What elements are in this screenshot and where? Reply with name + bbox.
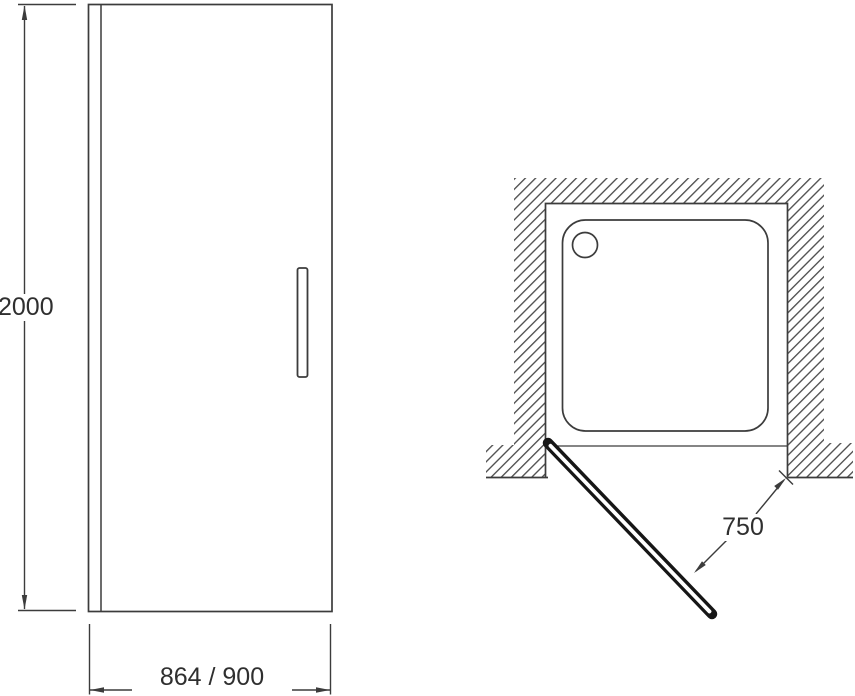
- arrowhead-down: [22, 595, 27, 610]
- open-door-panel-core: [551, 446, 710, 612]
- door-handle: [298, 268, 308, 377]
- arrowhead-to-wall-corner: [774, 478, 786, 490]
- arrowhead-right: [316, 687, 330, 692]
- arrowhead-up: [22, 6, 27, 21]
- drawing-linework: [0, 0, 855, 696]
- door-panel: [89, 5, 333, 612]
- plan-view: [486, 178, 853, 614]
- front-elevation-view: [89, 5, 333, 612]
- width-dimension-label: 864 / 900: [132, 664, 292, 691]
- technical-drawing: 2000 864 / 900 750: [0, 0, 855, 696]
- opening-dimension-label: 750: [716, 514, 770, 541]
- arrowhead-left: [90, 687, 104, 692]
- drain: [573, 233, 598, 258]
- height-dimension-label: 2000: [0, 294, 53, 321]
